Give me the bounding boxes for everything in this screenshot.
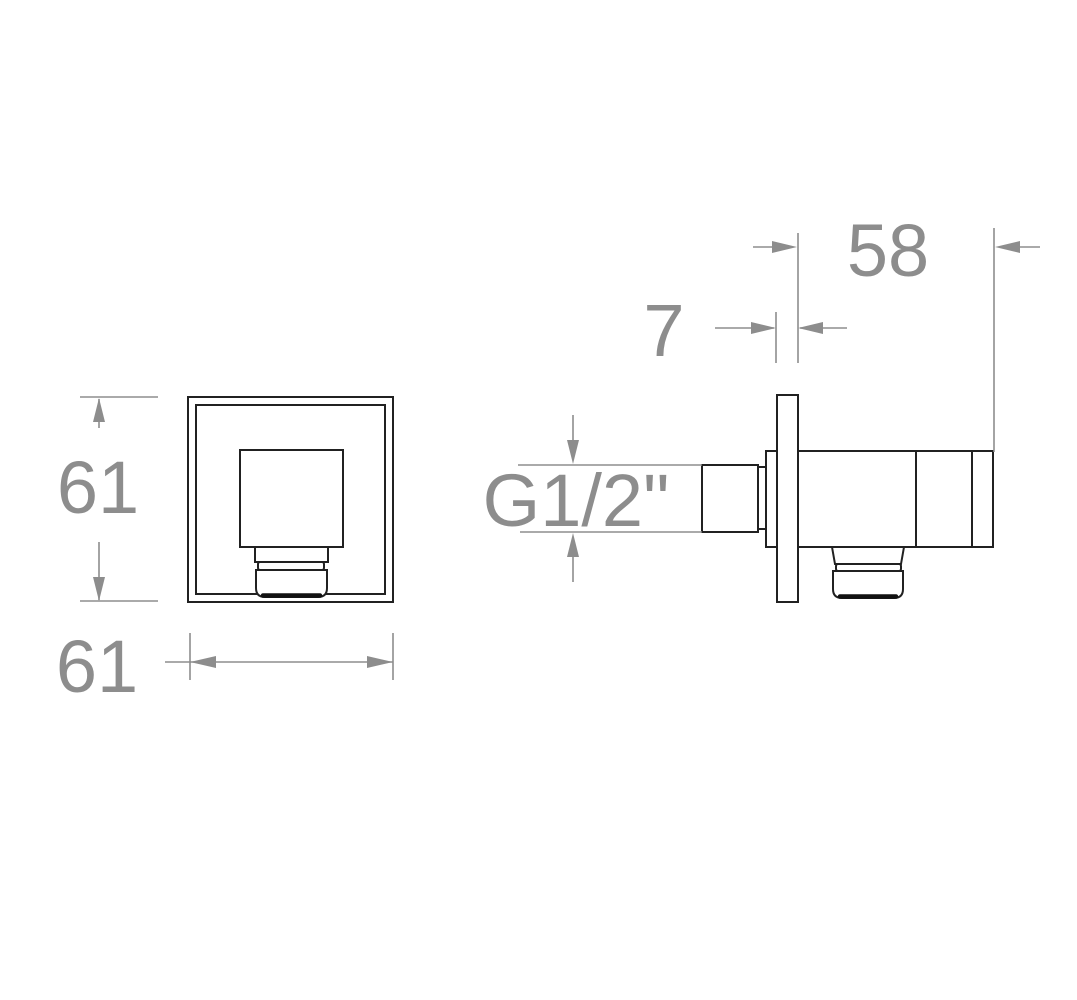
dim-plate-left-arrowhead — [751, 322, 776, 334]
dim-front-height: 61 — [57, 397, 158, 601]
side-thread-stub — [702, 465, 758, 532]
technical-drawing-page: 61 61 7 58 — [0, 0, 1077, 1000]
dim-front-height-bottom-arrowhead — [93, 577, 105, 601]
dim-thread-label: G1/2" — [483, 459, 670, 542]
dim-front-width-right-arrowhead — [367, 656, 393, 668]
side-wall-plate — [777, 395, 798, 602]
dim-front-width-label: 61 — [56, 625, 138, 708]
dim-front-height-label: 61 — [57, 446, 139, 529]
dim-front-width: 61 — [56, 625, 393, 708]
dim-front-width-left-arrowhead — [190, 656, 216, 668]
dim-plate-right-arrowhead — [798, 322, 823, 334]
front-outlet-block — [240, 450, 343, 547]
front-view — [188, 397, 393, 602]
side-view — [702, 395, 993, 602]
dim-thread: G1/2" — [483, 415, 702, 582]
side-flange — [766, 451, 777, 547]
front-nozzle-step1 — [255, 547, 328, 562]
dim-depth-left-arrowhead — [772, 241, 797, 253]
side-nozzle-step1 — [832, 547, 904, 564]
front-nozzle — [256, 570, 327, 597]
dim-front-height-top-arrowhead — [93, 398, 105, 422]
side-body — [798, 451, 993, 547]
side-nozzle-step2 — [836, 564, 901, 571]
dim-plate-thickness: 7 — [643, 233, 847, 372]
dim-plate-thickness-label: 7 — [643, 289, 684, 372]
side-stub-neck — [758, 467, 766, 529]
drawing-svg: 61 61 7 58 — [0, 0, 1077, 1000]
dim-depth-right-arrowhead — [995, 241, 1020, 253]
dim-depth-label: 58 — [847, 209, 929, 292]
front-nozzle-step2 — [258, 562, 324, 570]
side-nozzle — [833, 571, 903, 598]
